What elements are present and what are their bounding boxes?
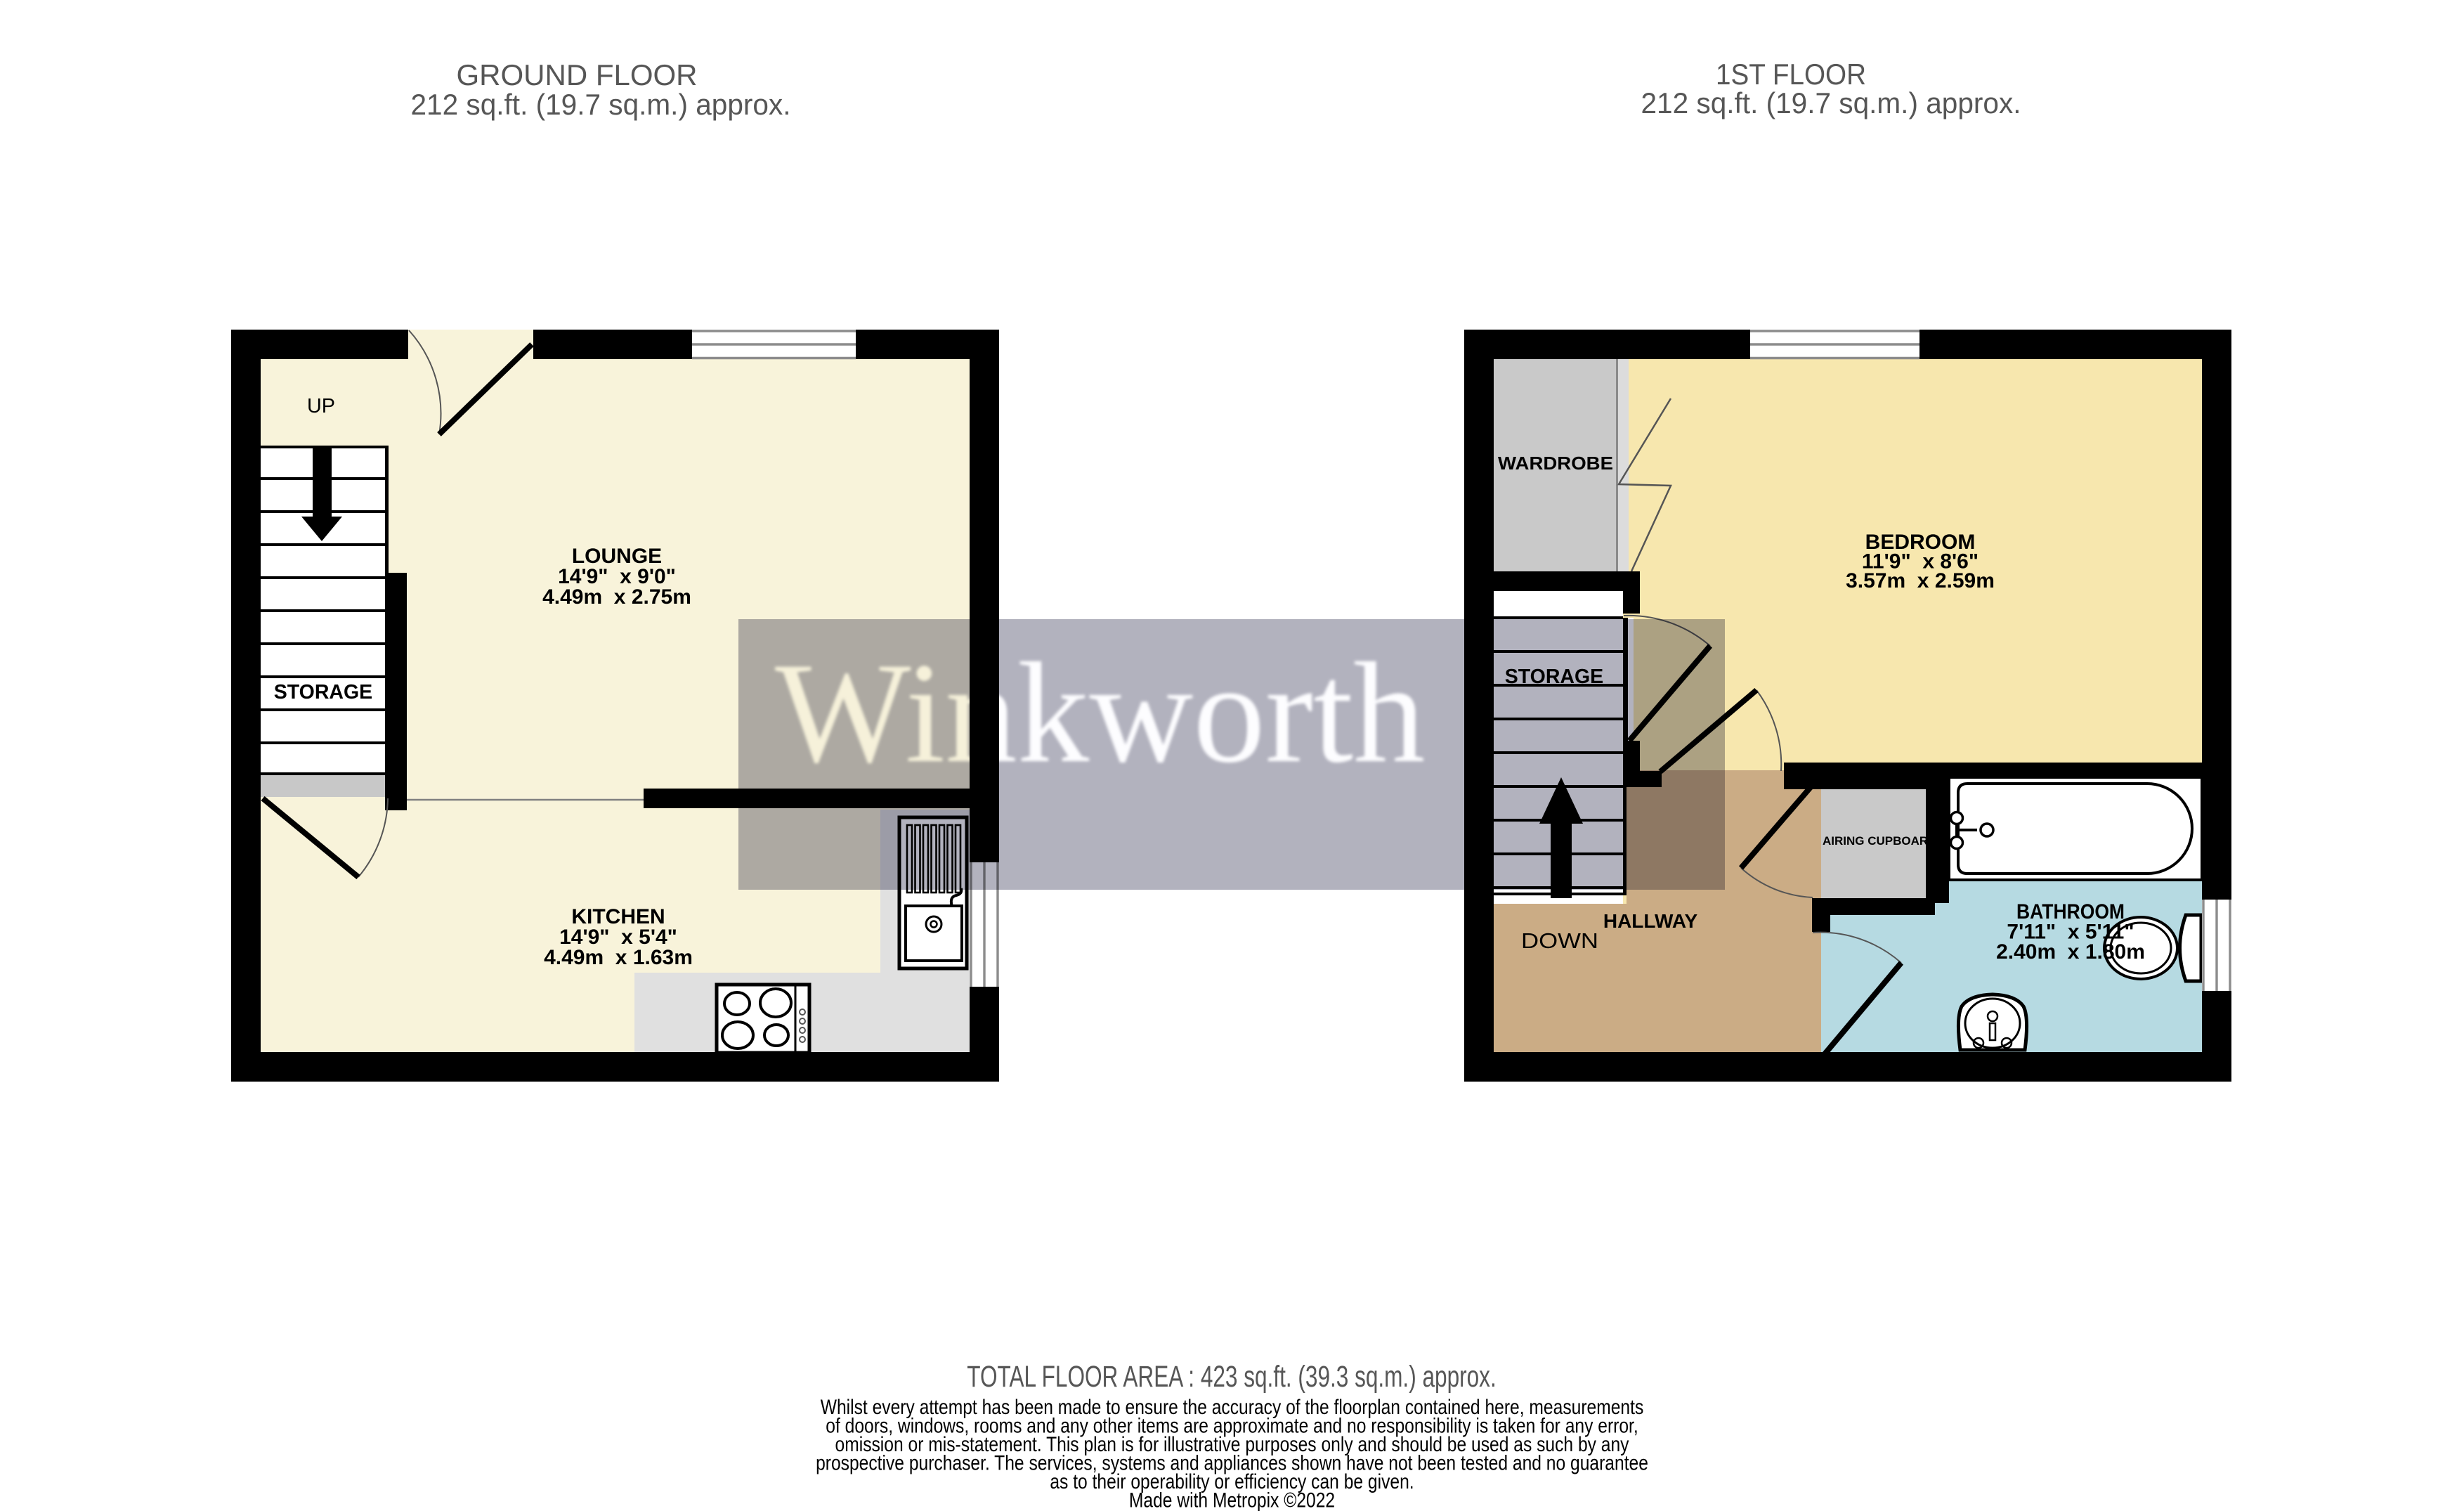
- svg-text:212 sq.ft. (19.7 sq.m.) approx: 212 sq.ft. (19.7 sq.m.) approx.: [411, 88, 791, 121]
- svg-text:TOTAL FLOOR AREA : 423 sq.ft.: TOTAL FLOOR AREA : 423 sq.ft. (39.3 sq.m…: [967, 1359, 1496, 1393]
- svg-text:STORAGE: STORAGE: [274, 681, 372, 703]
- svg-text:4.49m x 2.75m: 4.49m x 2.75m: [542, 585, 691, 609]
- svg-text:1ST FLOOR: 1ST FLOOR: [1716, 58, 1866, 91]
- svg-text:DOWN: DOWN: [1521, 928, 1598, 953]
- svg-text:2.40m x 1.80m: 2.40m x 1.80m: [1996, 940, 2145, 964]
- svg-text:212 sq.ft. (19.7 sq.m.) approx: 212 sq.ft. (19.7 sq.m.) approx.: [1641, 86, 2021, 119]
- svg-text:GROUND FLOOR: GROUND FLOOR: [456, 58, 697, 91]
- svg-text:4.49m x 1.63m: 4.49m x 1.63m: [544, 946, 693, 969]
- svg-text:Made with Metropix ©2022: Made with Metropix ©2022: [1129, 1488, 1335, 1511]
- svg-text:AIRING CUPBOARD: AIRING CUPBOARD: [1823, 834, 1936, 848]
- svg-text:Winkworth: Winkworth: [775, 633, 1426, 793]
- svg-text:HALLWAY: HALLWAY: [1603, 910, 1698, 932]
- svg-text:UP: UP: [307, 395, 335, 417]
- svg-text:WARDROBE: WARDROBE: [1498, 454, 1613, 474]
- svg-text:3.57m x 2.59m: 3.57m x 2.59m: [1846, 569, 1995, 592]
